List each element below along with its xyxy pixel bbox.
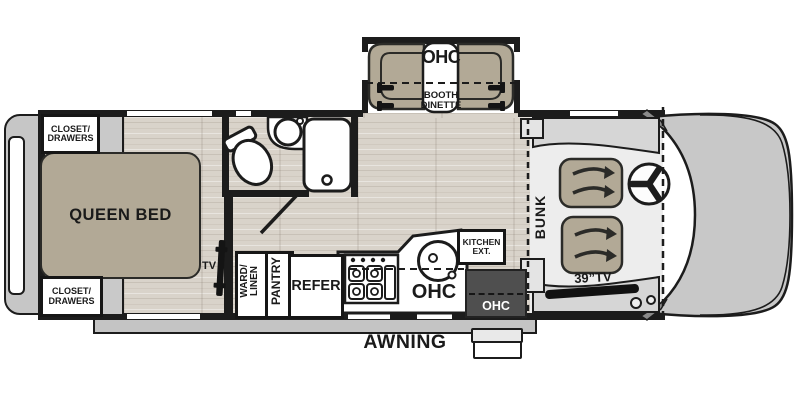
driver-seat — [562, 217, 622, 273]
kitchen-ext-box: KITCHEN EXT. — [457, 229, 506, 265]
entry-overhead-cabinet: OHC — [465, 269, 527, 318]
bath-sink-vanity — [268, 117, 307, 149]
kitchen-sink — [419, 242, 458, 281]
bath-door-swing — [261, 195, 297, 233]
dinette-ohc-label: OHC — [420, 46, 462, 68]
closet-bottom-label: CLOSET/ DRAWERS — [48, 287, 94, 306]
entry-ohc-label: OHC — [467, 297, 525, 316]
pantry-label: PANTRY — [269, 252, 283, 310]
entry-ohc-dash-line — [469, 293, 523, 295]
rv-floorplan: CLOSET/ DRAWERS CLOSET/ DRAWERS QUEEN BE… — [0, 0, 800, 400]
refrigerator: REFER — [288, 254, 344, 319]
booth-dinette-label: BOOTH DINETTE — [412, 89, 470, 113]
cab-handle-2 — [647, 296, 655, 304]
kitchen-ext-label: KITCHEN EXT. — [463, 238, 501, 256]
bunk-label: BUNK — [531, 177, 549, 257]
passenger-seat — [560, 159, 622, 207]
range-stove — [345, 255, 398, 303]
tv-label: TV — [197, 260, 221, 273]
refer-label: REFER — [291, 279, 340, 294]
closet-top-label: CLOSET/ DRAWERS — [47, 125, 93, 144]
bunk-cabinet-top — [521, 119, 543, 138]
closet-drawers-top: CLOSET/ DRAWERS — [41, 114, 100, 154]
awning-label: AWNING — [357, 329, 453, 355]
kitchen-ohc-label: OHC — [406, 280, 462, 304]
cab-handle-1 — [631, 298, 641, 308]
closet-drawers-bottom: CLOSET/ DRAWERS — [40, 276, 103, 317]
ward-linen-label: WARD/ LINEN — [238, 252, 262, 310]
shower — [304, 119, 351, 191]
